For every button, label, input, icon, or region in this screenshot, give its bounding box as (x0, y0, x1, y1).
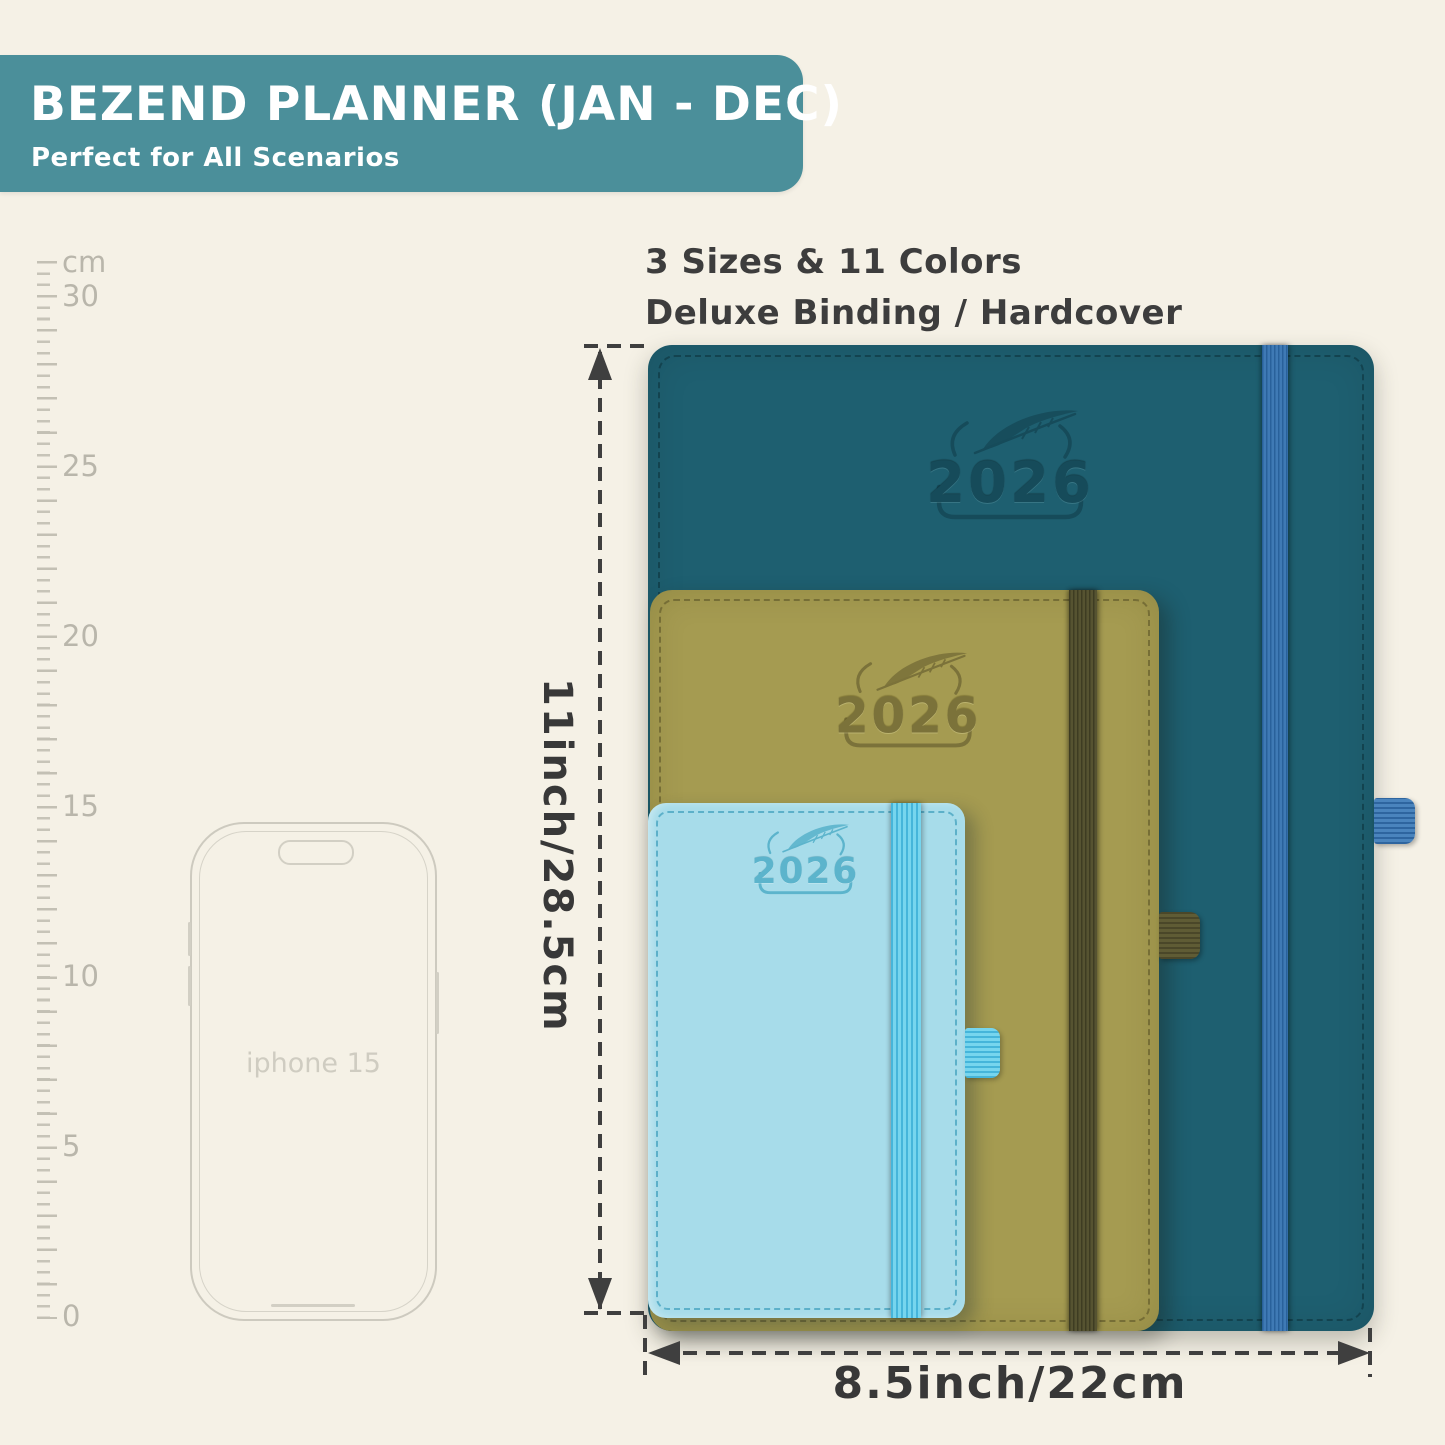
ruler-label-25: 25 (62, 450, 122, 482)
ruler-label-0: 0 (62, 1300, 122, 1332)
ruler-label-5: 5 (62, 1130, 122, 1162)
planner-large-elastic-band (1262, 345, 1288, 1331)
banner-subtitle: Perfect for All Scenarios (31, 143, 400, 173)
dimension-line-horizontal (660, 1351, 1360, 1355)
planner-medium-elastic-band (1069, 590, 1097, 1331)
title-banner: BEZEND PLANNER (JAN - DEC) Perfect for A… (0, 55, 803, 192)
phone-dynamic-island (278, 840, 354, 865)
planner-small-emblem: 2026 (751, 821, 860, 903)
phone-volume-down-button (188, 966, 191, 1006)
planner-small-blue: 2026 (648, 803, 965, 1318)
phone-power-button (436, 972, 439, 1034)
ruler-label-20: 20 (62, 620, 122, 652)
height-dimension-label: 11inch/28.5cm (534, 678, 580, 1033)
width-dimension-label: 8.5inch/22cm (650, 1358, 1370, 1409)
banner-title: BEZEND PLANNER (JAN - DEC) (30, 77, 843, 132)
product-image: BEZEND PLANNER (JAN - DEC) Perfect for A… (0, 0, 1445, 1445)
dimension-line-vertical (598, 352, 602, 1310)
arrow-up-icon (588, 348, 612, 380)
dimension-cap-bottom (584, 1311, 646, 1315)
planner-large-pen-loop (1374, 798, 1415, 844)
ruler-ticks (37, 261, 57, 1319)
headline-line2: Deluxe Binding / Hardcover (645, 288, 1182, 339)
dimension-cap-left (643, 1315, 647, 1377)
planner-small-year: 2026 (751, 850, 860, 892)
phone-speaker-line (271, 1304, 355, 1307)
planner-small-pen-loop (965, 1028, 1000, 1078)
ruler-label-10: 10 (62, 960, 122, 992)
phone-volume-up-button (188, 922, 191, 956)
planner-large-year: 2026 (925, 451, 1095, 516)
ruler-label-15: 15 (62, 790, 122, 822)
planner-large-emblem: 2026 (925, 405, 1095, 533)
ruler-label-30: 30 (62, 280, 122, 312)
planner-medium-pen-loop (1159, 912, 1200, 959)
phone-label: iphone 15 (192, 1048, 435, 1079)
arrow-down-icon (588, 1278, 612, 1310)
headline-line1: 3 Sizes & 11 Colors (645, 237, 1182, 288)
planner-medium-emblem: 2026 (834, 648, 982, 759)
planner-small-elastic-band (891, 803, 921, 1318)
phone-outline: iphone 15 (190, 822, 437, 1321)
feature-headline: 3 Sizes & 11 Colors Deluxe Binding / Har… (645, 237, 1182, 339)
planner-medium-year: 2026 (834, 688, 982, 745)
ruler-unit-label: cm (62, 246, 122, 278)
